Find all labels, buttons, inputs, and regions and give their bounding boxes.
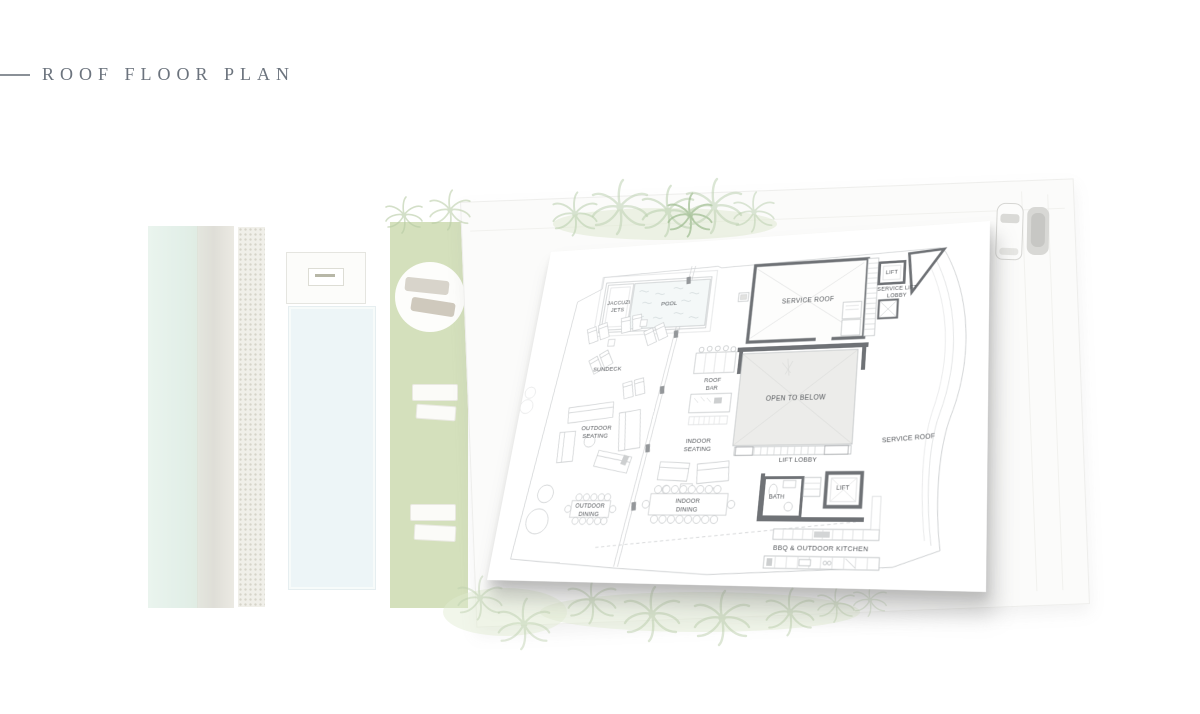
skylight [738,293,749,302]
sunbed [416,404,457,422]
lawn-strip [390,222,468,608]
room-label-pool: POOL [661,300,678,308]
page-title: ROOF FLOOR PLAN [42,64,295,85]
sea-water-strip [148,226,198,608]
page: ROOF FLOOR PLAN [0,0,1200,714]
sun-lounger [410,297,456,318]
sunbed [414,524,457,542]
room-label-bbq-outdoor-kitchen: BBQ & OUTDOOR KITCHEN [773,544,869,555]
room-label-outdoor-dining: OUTDOOR DINING [569,502,610,518]
title-dash [0,74,30,76]
pebble-strip [238,227,265,607]
car-windshield [1000,214,1019,224]
car-icon [995,203,1024,261]
cabana-table [308,268,344,286]
background-pool [288,306,376,590]
title-block: ROOF FLOOR PLAN [0,64,295,85]
cabana-bench [315,274,335,277]
beach-sand-strip [197,226,234,608]
car-rear [999,248,1018,256]
room-label-lift-lobby: LIFT LOBBY [778,456,817,465]
room-label-service-lift-lobby: SERVICE LIFT LOBBY [874,284,919,300]
car-roof [1031,213,1046,247]
room-label-outdoor-seating: OUTDOOR SEATING [575,424,616,441]
car-icon [1027,207,1050,255]
floor-plan-drawing [487,221,990,592]
room-label-lift-top: LIFT [886,269,899,277]
room-label-indoor-dining: INDOOR DINING [669,497,705,514]
lounger-deck-circle [395,262,465,332]
room-label-bath: BATH [768,493,784,501]
cabana-structure [286,252,366,304]
room-label-lift-bottom: LIFT [836,484,849,492]
sunbed [412,384,458,401]
floor-plan-sheet: JACCUZI JETS POOL SERVICE ROOF LIFT SERV… [487,221,990,592]
sunbed [410,504,456,521]
balustrade [734,445,852,455]
sundeck-loungers [575,312,671,400]
room-label-sundeck: SUNDECK [593,365,623,374]
faint-line [1047,194,1063,590]
room-label-roof-bar: ROOF BAR [699,377,726,393]
room-label-jacuzzi-jets: JACCUZI JETS [603,299,633,314]
room-label-open-to-below: OPEN TO BELOW [765,393,826,403]
service-shaft [878,299,898,318]
sun-lounger [404,277,449,296]
room-label-indoor-seating: INDOOR SEATING [678,437,717,454]
